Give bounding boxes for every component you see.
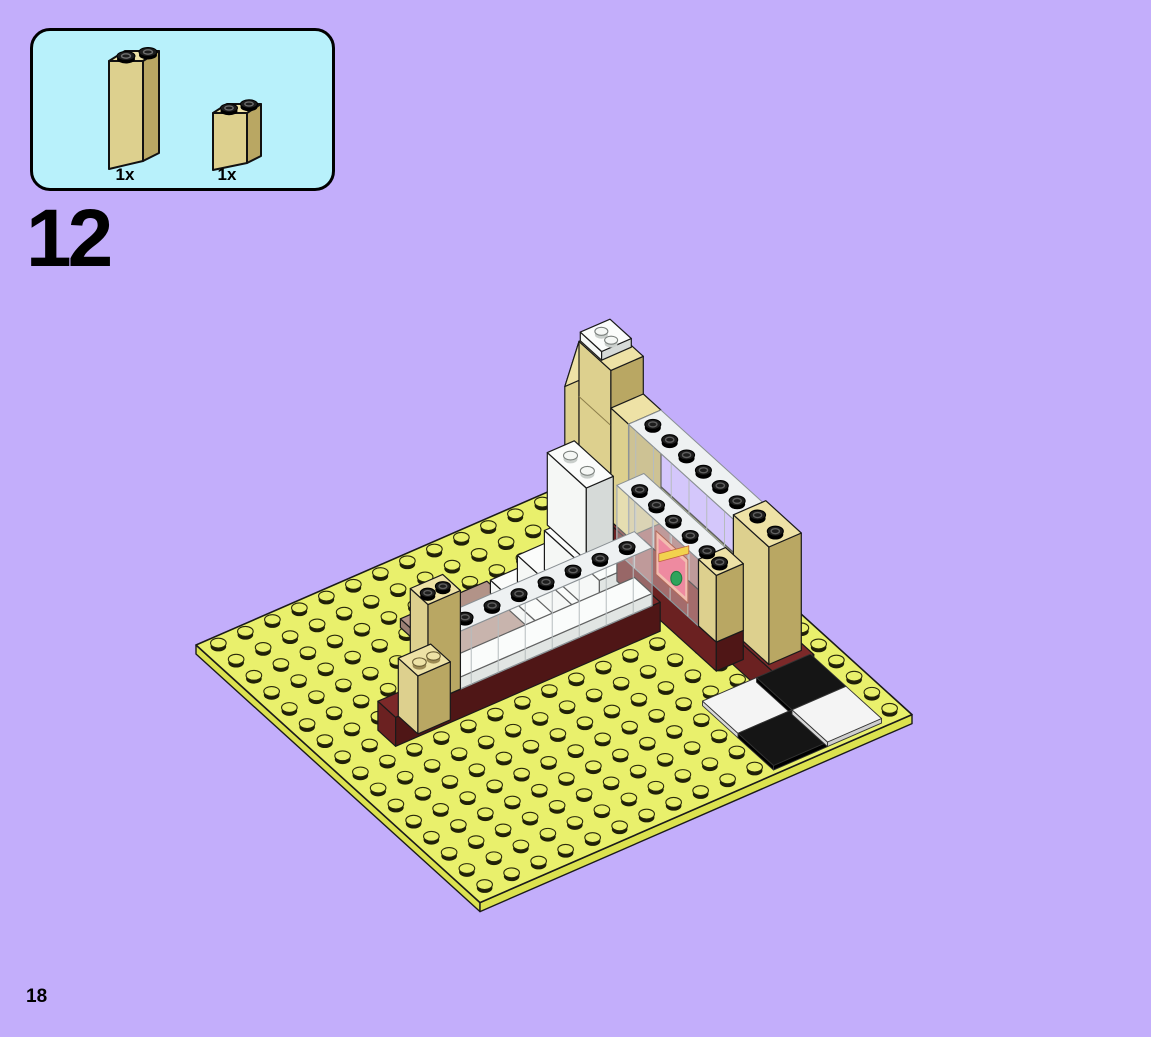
page-number: 18 [26, 986, 47, 1008]
instruction-page: 1x 1x 12 18 [0, 0, 1151, 1037]
model-illustration [0, 0, 1151, 1037]
